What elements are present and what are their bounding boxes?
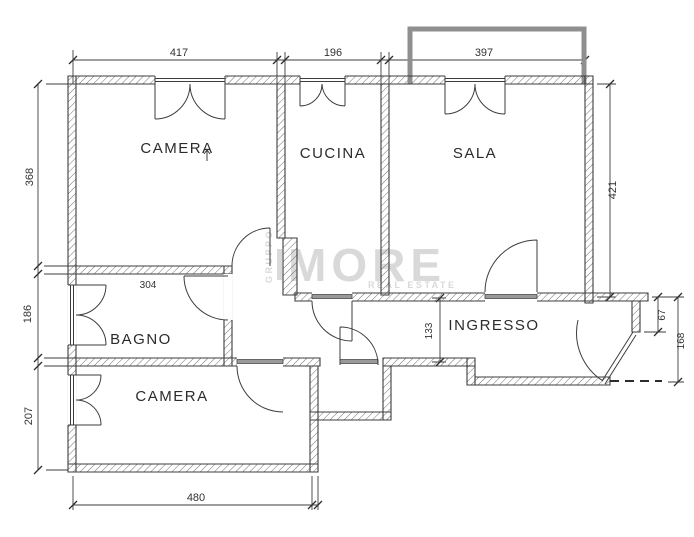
room-label-ingresso: INGRESSO <box>448 317 539 334</box>
dimension-hall-width: 133 <box>424 322 435 339</box>
room-label-camera-top: CAMERA <box>140 140 213 157</box>
dimension-recess: 67 <box>657 309 668 321</box>
watermark-bar-icon <box>277 249 282 280</box>
watermark-group-text: GRUPPO <box>264 229 274 283</box>
dimension-top-cucina: 196 <box>324 47 342 59</box>
dimension-left-camera2: 207 <box>23 407 35 425</box>
dimension-right-sala: 421 <box>607 181 619 199</box>
floor-plan-svg: GRUPPO MORE REAL ESTATE 417 196 397 368 … <box>0 0 694 537</box>
dimension-top-camera: 417 <box>170 47 188 59</box>
dimension-left-camera: 368 <box>24 168 36 186</box>
floor-plan-page: GRUPPO MORE REAL ESTATE 417 196 397 368 … <box>0 0 694 537</box>
dimension-bottom-camera2: 480 <box>187 492 205 504</box>
room-label-camera-bottom: CAMERA <box>135 388 208 405</box>
dimension-bagno-width: 304 <box>140 280 157 291</box>
dimension-top-sala: 397 <box>475 47 493 59</box>
dimension-left-bagno: 186 <box>22 305 34 323</box>
room-label-bagno: BAGNO <box>110 331 172 348</box>
dimension-entry: 168 <box>676 332 687 349</box>
room-label-cucina: CUCINA <box>300 145 367 162</box>
room-label-sala: SALA <box>453 145 497 162</box>
